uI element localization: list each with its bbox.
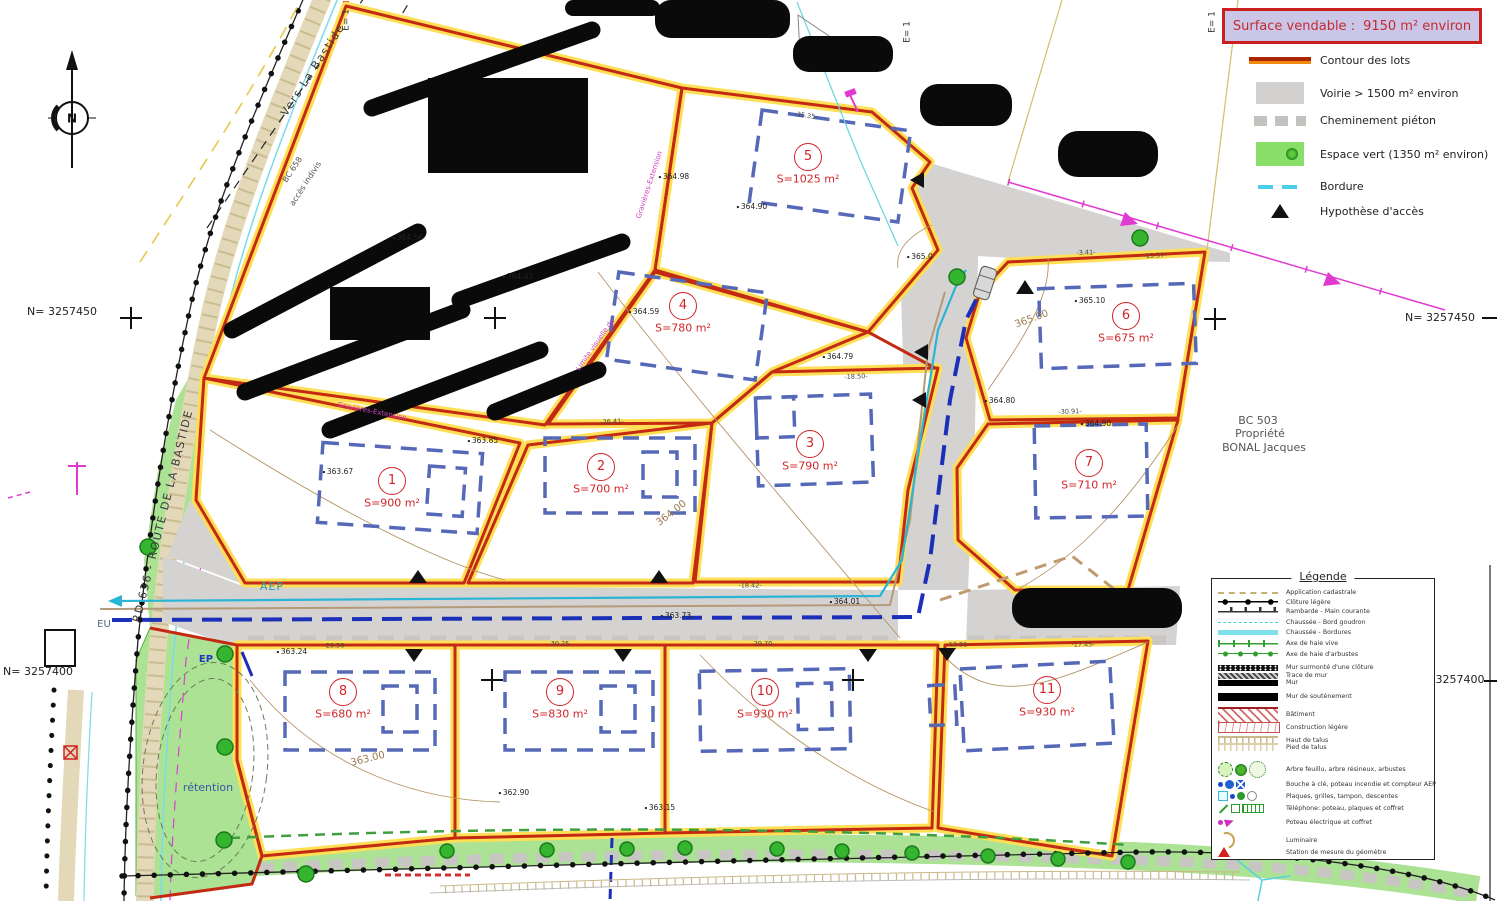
sy-arrow-m-icon xyxy=(1224,817,1235,828)
legend-item-swatch-wrap xyxy=(1218,743,1280,751)
spot-label: 365.10 xyxy=(1075,297,1105,305)
legend-item-label: Mur de soutènement xyxy=(1286,693,1352,700)
cloture-swatch xyxy=(1218,598,1278,606)
legend-item-swatch-wrap xyxy=(1218,761,1280,778)
legend-item-swatch-wrap xyxy=(1218,804,1280,813)
legend-item-label: Rambarde - Main courante xyxy=(1286,608,1370,615)
lot-area-7: S=710 m² xyxy=(1061,479,1117,492)
legend-item-bordgoudron: Chaussée - Bord goudron xyxy=(1218,619,1428,626)
spot-label: 364.43 xyxy=(503,273,533,281)
legend-item-swatch-wrap xyxy=(1218,847,1280,857)
site-plan-page: 1S=900 m²2S=700 m²3S=790 m²4S=780 m²5S=1… xyxy=(0,0,1500,901)
surface-vendable-title-box: Surface vendable : 9150 m² environ xyxy=(1222,8,1482,44)
legend-item-swatch-wrap xyxy=(1218,598,1280,606)
tr-resineux-icon xyxy=(1235,764,1247,776)
legend-item-swatch-wrap xyxy=(1218,592,1280,594)
lot-area-3: S=790 m² xyxy=(782,460,838,473)
legend-item-telephone: Téléphone: poteau, plaques et coffret xyxy=(1218,804,1428,813)
legend-item-label: Plaques, grilles, tampon, descentes xyxy=(1286,793,1398,800)
lot-number-4: 4 xyxy=(669,292,697,320)
dim-label: -18.42- xyxy=(738,583,761,590)
legend-item-label: Station de mesure du géomètre xyxy=(1286,849,1386,856)
legend-top-item-contour: Contour des lots xyxy=(1240,54,1490,67)
lot-number-3: 3 xyxy=(796,430,824,458)
legend-top-item-bordure: Bordure xyxy=(1240,180,1490,193)
lot-area-1: S=900 m² xyxy=(364,497,420,510)
legend-item-swatch-wrap xyxy=(1218,692,1280,701)
compass-label: N xyxy=(67,113,77,126)
legend-item-swatch-wrap xyxy=(1218,640,1280,647)
dim-label: -18.50- xyxy=(844,373,868,381)
legend-item-arbres: Arbre feuillu, arbre résineux, arbustes xyxy=(1218,761,1428,778)
surface-vendable-label: Surface vendable : xyxy=(1233,19,1355,34)
legend-item-swatch-wrap xyxy=(1218,650,1280,658)
spot-label: 364.59 xyxy=(629,308,659,316)
retention-label: rétention xyxy=(183,782,233,794)
coord-label: 3257400 xyxy=(1436,674,1485,686)
surface-vendable-value: 9150 m² environ xyxy=(1363,19,1471,34)
contour-swatch xyxy=(1249,57,1311,64)
lot-area-4: S=780 m² xyxy=(655,322,711,335)
acces-swatch xyxy=(1271,204,1289,218)
legend-top-item-label: Bordure xyxy=(1320,180,1364,193)
legend-top-item-voirie: Voirie > 1500 m² environ xyxy=(1240,82,1490,104)
legend-item-bordures: Chaussée - Bordures xyxy=(1218,629,1428,636)
legend-item-poteau: Poteau électrique et coffret xyxy=(1218,818,1428,826)
eu-label: EU xyxy=(97,620,111,631)
lot-number-8: 8 xyxy=(329,678,357,706)
legend-item-swatch-wrap xyxy=(1218,673,1280,679)
legend-top-swatch-wrap xyxy=(1240,185,1320,189)
legend-item-label: Poteau électrique et coffret xyxy=(1286,819,1372,826)
lot-number-1: 1 xyxy=(378,467,406,495)
spot-label: 364.80 xyxy=(985,397,1015,405)
soutenement-swatch xyxy=(1218,693,1278,701)
sy-tri-r-icon xyxy=(1218,847,1230,857)
legend-item-station: Station de mesure du géomètre xyxy=(1218,847,1428,857)
legend-item-label: Axe de haie d'arbustes xyxy=(1286,651,1358,658)
legend-item-swatch-wrap xyxy=(1218,622,1280,623)
sy-dot-b-icon xyxy=(1230,794,1235,799)
legend-item-constr: Construction légère xyxy=(1218,722,1428,733)
dim-label: -29.36- xyxy=(323,643,346,650)
dim-label: -26.41- xyxy=(600,418,624,426)
lot-number-6: 6 xyxy=(1112,302,1140,330)
sy-sq-c-icon xyxy=(1218,791,1228,801)
legend-item-label: Luminaire xyxy=(1286,837,1317,844)
legend-item-cadastral: Application cadastrale xyxy=(1218,589,1428,596)
lot-number-9: 9 xyxy=(546,678,574,706)
legend-item-murcloture: Mur surmonté d'une clôture xyxy=(1218,664,1428,671)
voirie-swatch xyxy=(1256,82,1304,104)
tracemur-swatch xyxy=(1218,673,1278,679)
spot-label: 364.90 xyxy=(737,203,767,211)
legend-top-swatch-wrap xyxy=(1240,204,1320,218)
legend-item-label: Arbre feuillu, arbre résineux, arbustes xyxy=(1286,766,1406,773)
legend-item-swatch-wrap xyxy=(1218,722,1280,733)
legend-item-swatch-wrap xyxy=(1218,680,1280,686)
legend-item-soutenement: Mur de soutènement xyxy=(1218,692,1428,701)
haiearb-swatch xyxy=(1218,650,1278,658)
legend-item-label: Chaussée - Bord goudron xyxy=(1286,619,1366,626)
legend-item-label: Clôture légère xyxy=(1286,599,1331,606)
coord-label: N= 3257450 xyxy=(27,306,97,318)
legend-item-label: Mur surmonté d'une clôture xyxy=(1286,664,1374,671)
legend-panel-title: Légende xyxy=(1291,570,1354,583)
spot-label: 363.85 xyxy=(468,437,498,445)
legend-item-label: Trace de mur xyxy=(1286,672,1327,679)
coord-label: N= 3257450 xyxy=(1405,312,1475,324)
sy-circ-b-icon xyxy=(1225,780,1234,789)
dim-label: -30.91- xyxy=(1058,408,1082,416)
legend-top-swatch-wrap xyxy=(1240,116,1320,126)
tr-feuillu-icon xyxy=(1218,762,1233,777)
legend-top-item-chemin: Cheminement piéton xyxy=(1240,114,1490,127)
aep-label: AEP xyxy=(260,581,284,593)
spot-label: 364.56 xyxy=(393,234,423,242)
batiment-swatch xyxy=(1218,707,1278,722)
legend-item-swatch-wrap xyxy=(1218,607,1280,615)
legend-top: Contour des lotsVoirie > 1500 m² environ… xyxy=(1240,46,1490,236)
bordures-swatch xyxy=(1218,630,1278,635)
legend-item-aepsym: Bouche à clé, poteau incendie et compteu… xyxy=(1218,780,1428,789)
dim-label: -29.70- xyxy=(751,641,774,648)
chemin-swatch xyxy=(1254,116,1306,126)
legend-item-label: Pied de talus xyxy=(1286,744,1327,751)
legend-item-plaques: Plaques, grilles, tampon, descentes xyxy=(1218,791,1428,801)
lot-area-8: S=680 m² xyxy=(315,708,371,721)
dim-label: -17.45- xyxy=(1071,642,1094,649)
parcelref-label: Propriété xyxy=(1235,428,1285,440)
murcloture-swatch xyxy=(1218,665,1278,671)
legend-item-label: Chaussée - Bordures xyxy=(1286,629,1351,636)
legend-item-haievive: Axe de haie vive xyxy=(1218,640,1428,647)
legend-item-batiment: Bâtiment xyxy=(1218,707,1428,722)
dim-label: -13.91- xyxy=(946,642,969,649)
legend-item-label: Mur xyxy=(1286,679,1298,686)
legend-item-swatch-wrap xyxy=(1218,707,1280,722)
sy-circ-g-icon xyxy=(1237,792,1245,800)
legend-item-rambarde: Rambarde - Main courante xyxy=(1218,607,1428,615)
lot-number-7: 7 xyxy=(1075,449,1103,477)
coord-label: N= 3257400 xyxy=(3,666,73,678)
eref-label: E= 1 xyxy=(903,21,912,43)
eref-label: E= 1 xyxy=(1208,11,1217,33)
parcelref-label: BONAL Jacques xyxy=(1222,442,1306,454)
sy-sq-b-icon xyxy=(1236,780,1245,789)
lot-area-11: S=930 m² xyxy=(1019,706,1075,719)
legend-top-item-label: Contour des lots xyxy=(1320,54,1410,67)
legend-panel: Légende Application cadastraleClôture lé… xyxy=(1211,578,1435,860)
eref-label: E= 1 xyxy=(342,9,351,31)
spot-label: 363.24 xyxy=(277,648,307,656)
legend-top-swatch-wrap xyxy=(1240,142,1320,166)
cadastral-swatch xyxy=(1218,592,1278,594)
tr-arbuste-icon xyxy=(1249,761,1266,778)
lot-area-10: S=930 m² xyxy=(737,708,793,721)
constr-swatch xyxy=(1218,722,1280,733)
legend-top-item-vert: Espace vert (1350 m² environ) xyxy=(1240,142,1490,166)
dim-label: -30.25- xyxy=(548,641,571,648)
legend-item-swatch-wrap xyxy=(1218,780,1280,789)
legend-top-swatch-wrap xyxy=(1240,57,1320,64)
legend-item-cloture: Clôture légère xyxy=(1218,598,1428,606)
piedtalus-swatch xyxy=(1218,743,1278,751)
sy-rect-g-icon xyxy=(1242,804,1264,813)
legend-top-item-label: Espace vert (1350 m² environ) xyxy=(1320,148,1488,161)
lot-area-6: S=675 m² xyxy=(1098,332,1154,345)
legend-item-label: Axe de haie vive xyxy=(1286,640,1338,647)
north-compass xyxy=(48,50,96,168)
dim-label: -3.41- xyxy=(1076,249,1095,256)
legend-top-item-label: Hypothèse d'accès xyxy=(1320,205,1424,218)
legend-item-piedtalus: Pied de talus xyxy=(1218,743,1428,751)
legend-item-label: Bouche à clé, poteau incendie et compteu… xyxy=(1286,781,1436,788)
lot-area-2: S=700 m² xyxy=(573,483,629,496)
lot-number-10: 10 xyxy=(751,678,779,706)
lot-number-11: 11 xyxy=(1033,676,1061,704)
sy-slash-g-icon xyxy=(1219,804,1228,813)
haievive-swatch xyxy=(1218,640,1278,647)
legend-item-label: Bâtiment xyxy=(1286,711,1315,718)
legend-item-swatch-wrap xyxy=(1218,791,1280,801)
spot-label: 362.90 xyxy=(499,789,529,797)
legend-top-item-acces: Hypothèse d'accès xyxy=(1240,204,1490,218)
spot-label: 364.01 xyxy=(830,598,860,606)
mur-swatch xyxy=(1218,680,1278,686)
vert-swatch xyxy=(1256,142,1304,166)
sy-dot-b-icon xyxy=(1218,782,1223,787)
sy-sq-g-icon xyxy=(1231,804,1240,813)
dim-label: -15.57- xyxy=(1143,252,1167,260)
spot-label: 364.79 xyxy=(823,353,853,361)
rambarde-swatch xyxy=(1218,607,1278,615)
bordgoudron-swatch xyxy=(1218,622,1278,623)
legend-item-swatch-wrap xyxy=(1218,630,1280,635)
lot-area-5: S=1025 m² xyxy=(777,173,840,186)
legend-top-swatch-wrap xyxy=(1240,82,1320,104)
spot-label: 363.15 xyxy=(645,804,675,812)
legend-top-item-label: Cheminement piéton xyxy=(1320,114,1436,127)
spot-label: 365.0 xyxy=(907,253,932,261)
lot-number-5: 5 xyxy=(794,143,822,171)
legend-item-swatch-wrap xyxy=(1218,818,1280,826)
legend-item-label: Téléphone: poteau, plaques et coffret xyxy=(1286,805,1404,812)
legend-item-label: Construction légère xyxy=(1286,724,1348,731)
spot-label: 364.90 xyxy=(1081,420,1111,428)
legend-item-haiearb: Axe de haie d'arbustes xyxy=(1218,650,1428,658)
spot-label: 364.98 xyxy=(659,173,689,181)
legend-top-item-label: Voirie > 1500 m² environ xyxy=(1320,87,1458,100)
legend-item-mur: Mur xyxy=(1218,679,1428,686)
parcelref-label: BC 503 xyxy=(1238,415,1278,427)
lot-number-2: 2 xyxy=(587,453,615,481)
ep-label: EP xyxy=(199,655,213,666)
legend-item-swatch-wrap xyxy=(1218,665,1280,671)
sy-dot-m-icon xyxy=(1218,820,1223,825)
legend-item-label: Application cadastrale xyxy=(1286,589,1356,596)
spot-label: 363.67 xyxy=(323,468,353,476)
bordure-swatch xyxy=(1258,185,1302,189)
lot-area-9: S=830 m² xyxy=(532,708,588,721)
sy-circ-o-icon xyxy=(1247,791,1257,801)
legend-item-tracemur: Trace de mur xyxy=(1218,672,1428,679)
spot-label: 363.73 xyxy=(661,612,691,620)
